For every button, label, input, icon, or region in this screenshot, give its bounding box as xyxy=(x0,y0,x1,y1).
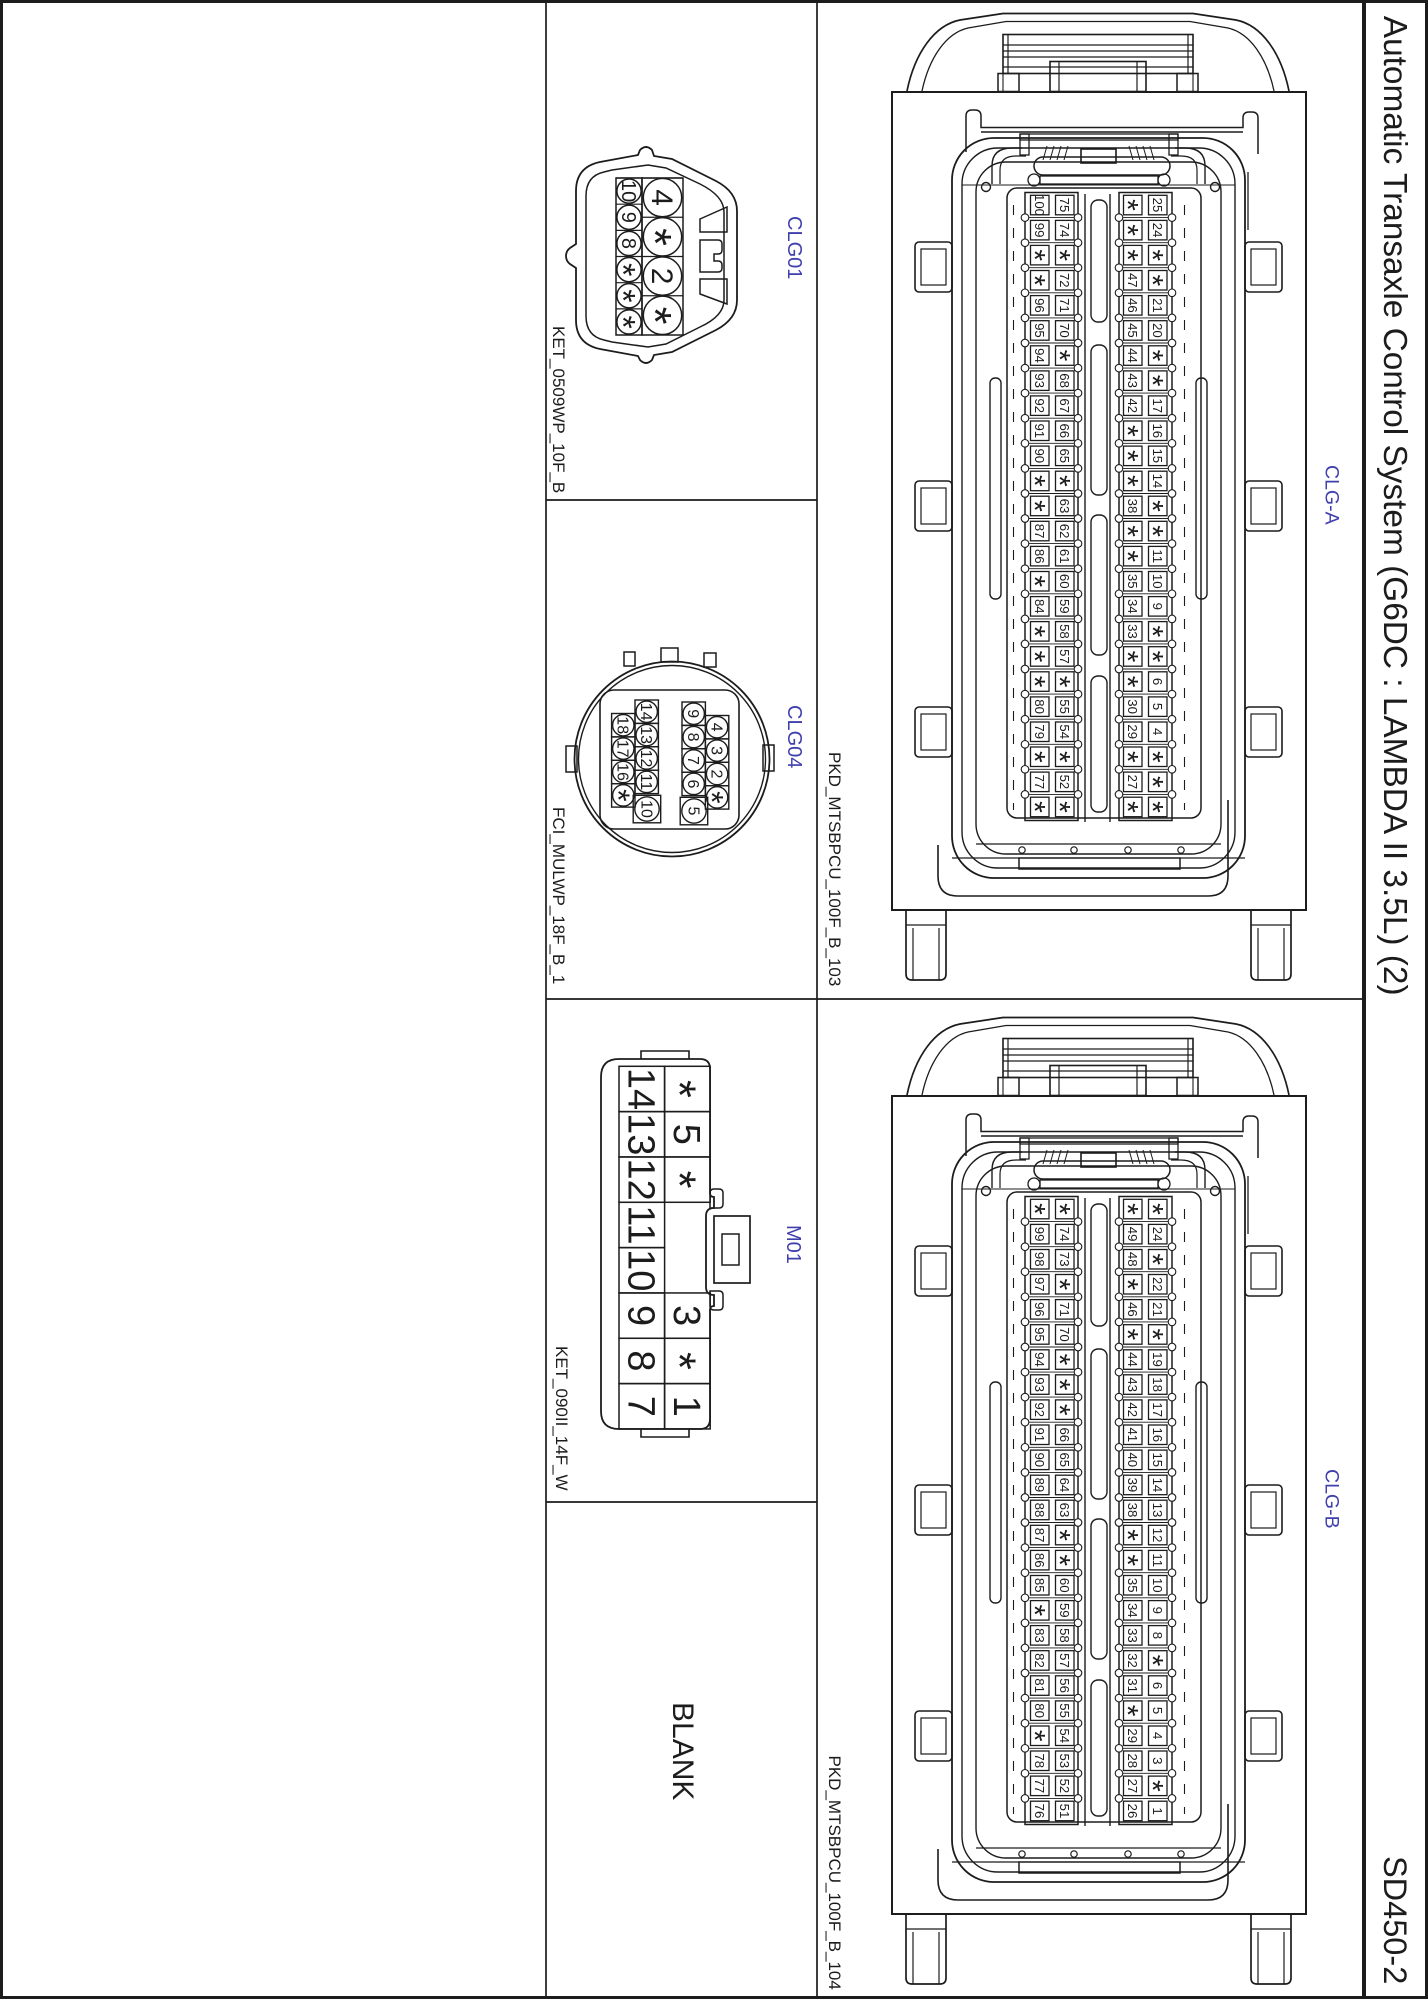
svg-text:*: * xyxy=(1135,249,1168,261)
svg-text:CLG01: CLG01 xyxy=(783,216,805,279)
svg-text:KET_0509WP_10F_B: KET_0509WP_10F_B xyxy=(549,326,568,493)
svg-text:29: 29 xyxy=(1125,1728,1140,1743)
svg-text:65: 65 xyxy=(1057,1452,1072,1467)
svg-text:43: 43 xyxy=(1125,1377,1140,1392)
svg-text:14: 14 xyxy=(1150,1478,1165,1493)
svg-text:65: 65 xyxy=(1057,448,1072,463)
svg-text:*: * xyxy=(1135,350,1168,362)
svg-text:10: 10 xyxy=(1150,574,1165,589)
svg-text:12: 12 xyxy=(1150,1528,1165,1543)
svg-text:58: 58 xyxy=(1057,624,1072,639)
svg-text:90: 90 xyxy=(1032,448,1047,463)
svg-text:*: * xyxy=(1017,626,1050,638)
svg-text:*: * xyxy=(1042,1379,1075,1391)
svg-text:20: 20 xyxy=(1150,323,1165,338)
svg-text:70: 70 xyxy=(1057,1327,1072,1342)
svg-text:70: 70 xyxy=(1057,323,1072,338)
svg-text:4: 4 xyxy=(645,189,678,206)
svg-text:73: 73 xyxy=(1057,1252,1072,1267)
svg-text:*: * xyxy=(1110,425,1143,437)
svg-text:*: * xyxy=(600,789,636,801)
svg-text:66: 66 xyxy=(1057,423,1072,438)
svg-text:31: 31 xyxy=(1125,1678,1140,1693)
svg-text:39: 39 xyxy=(1125,1478,1140,1493)
svg-text:18: 18 xyxy=(614,716,631,734)
svg-text:72: 72 xyxy=(1057,273,1072,288)
svg-text:*: * xyxy=(654,1080,706,1098)
svg-text:55: 55 xyxy=(1057,699,1072,714)
svg-text:53: 53 xyxy=(1057,1753,1072,1768)
svg-text:91: 91 xyxy=(1032,423,1047,438)
svg-text:*: * xyxy=(1042,751,1075,763)
svg-text:63: 63 xyxy=(1057,1503,1072,1518)
svg-text:9: 9 xyxy=(684,709,701,718)
svg-text:7: 7 xyxy=(684,756,701,765)
svg-text:44: 44 xyxy=(1125,1352,1140,1367)
svg-text:7: 7 xyxy=(620,1396,662,1417)
svg-text:80: 80 xyxy=(1032,699,1047,714)
svg-text:89: 89 xyxy=(1032,1478,1047,1493)
svg-text:*: * xyxy=(654,1352,706,1370)
svg-text:*: * xyxy=(1042,1278,1075,1290)
svg-text:17: 17 xyxy=(1150,1402,1165,1417)
svg-text:46: 46 xyxy=(1125,298,1140,313)
svg-text:86: 86 xyxy=(1032,549,1047,564)
svg-text:54: 54 xyxy=(1057,724,1072,739)
svg-text:3: 3 xyxy=(708,746,725,755)
svg-text:8: 8 xyxy=(1150,1632,1165,1639)
svg-text:6: 6 xyxy=(1150,1682,1165,1689)
svg-text:9: 9 xyxy=(1150,1607,1165,1614)
svg-text:*: * xyxy=(1042,475,1075,487)
svg-text:16: 16 xyxy=(1150,1427,1165,1442)
svg-text:*: * xyxy=(1135,375,1168,387)
svg-text:61: 61 xyxy=(1057,549,1072,564)
svg-text:77: 77 xyxy=(1032,775,1047,790)
svg-text:35: 35 xyxy=(1125,1578,1140,1593)
svg-text:24: 24 xyxy=(1150,223,1165,238)
svg-text:52: 52 xyxy=(1057,775,1072,790)
svg-text:*: * xyxy=(1135,1329,1168,1341)
svg-text:*: * xyxy=(604,263,642,276)
svg-text:57: 57 xyxy=(1057,1653,1072,1668)
svg-text:15: 15 xyxy=(1150,1452,1165,1467)
svg-text:92: 92 xyxy=(1032,398,1047,413)
svg-text:51: 51 xyxy=(1057,1804,1072,1819)
svg-text:81: 81 xyxy=(1032,1678,1047,1693)
svg-text:25: 25 xyxy=(1150,198,1165,213)
svg-text:41: 41 xyxy=(1125,1427,1140,1442)
svg-text:95: 95 xyxy=(1032,1327,1047,1342)
svg-text:*: * xyxy=(629,228,681,246)
svg-text:*: * xyxy=(1135,525,1168,537)
svg-text:5: 5 xyxy=(665,1124,707,1145)
svg-text:90: 90 xyxy=(1032,1452,1047,1467)
svg-text:21: 21 xyxy=(1150,1302,1165,1317)
svg-text:58: 58 xyxy=(1057,1628,1072,1643)
svg-text:3: 3 xyxy=(665,1305,707,1326)
svg-text:80: 80 xyxy=(1032,1703,1047,1718)
svg-text:*: * xyxy=(1017,1604,1050,1616)
svg-text:CLG-A: CLG-A xyxy=(1320,465,1342,525)
svg-text:62: 62 xyxy=(1057,524,1072,539)
svg-text:*: * xyxy=(1042,1404,1075,1416)
svg-text:6: 6 xyxy=(1150,678,1165,685)
svg-text:4: 4 xyxy=(1150,728,1165,735)
svg-text:*: * xyxy=(1042,1354,1075,1366)
svg-text:11: 11 xyxy=(637,774,654,791)
svg-text:14: 14 xyxy=(1150,474,1165,489)
svg-text:M01: M01 xyxy=(782,1225,804,1264)
svg-text:29: 29 xyxy=(1125,724,1140,739)
svg-text:14: 14 xyxy=(637,703,654,721)
svg-text:87: 87 xyxy=(1032,524,1047,539)
svg-text:100: 100 xyxy=(1032,194,1047,216)
svg-text:CLG-B: CLG-B xyxy=(1320,1469,1342,1529)
svg-text:*: * xyxy=(1110,450,1143,462)
svg-text:74: 74 xyxy=(1057,1227,1072,1242)
svg-text:64: 64 xyxy=(1057,1478,1072,1493)
svg-text:*: * xyxy=(1110,1278,1143,1290)
svg-text:30: 30 xyxy=(1125,699,1140,714)
svg-text:2: 2 xyxy=(708,770,725,779)
svg-text:66: 66 xyxy=(1057,1427,1072,1442)
svg-text:96: 96 xyxy=(1032,1302,1047,1317)
svg-text:*: * xyxy=(1017,575,1050,587)
svg-text:16: 16 xyxy=(614,763,631,781)
svg-text:15: 15 xyxy=(1150,448,1165,463)
svg-text:56: 56 xyxy=(1057,1678,1072,1693)
svg-text:*: * xyxy=(1110,224,1143,236)
svg-text:95: 95 xyxy=(1032,323,1047,338)
svg-text:52: 52 xyxy=(1057,1779,1072,1794)
svg-text:3: 3 xyxy=(1150,1757,1165,1764)
svg-text:9: 9 xyxy=(620,1305,662,1326)
svg-text:9: 9 xyxy=(1150,603,1165,610)
svg-text:42: 42 xyxy=(1125,398,1140,413)
svg-text:42: 42 xyxy=(1125,1402,1140,1417)
svg-text:38: 38 xyxy=(1125,1503,1140,1518)
svg-text:*: * xyxy=(654,1171,706,1189)
svg-text:SD450-2: SD450-2 xyxy=(1377,1856,1413,1984)
svg-text:10: 10 xyxy=(617,180,639,202)
svg-text:88: 88 xyxy=(1032,1503,1047,1518)
svg-text:83: 83 xyxy=(1032,1628,1047,1643)
svg-text:*: * xyxy=(1042,676,1075,688)
svg-text:*: * xyxy=(1135,1655,1168,1667)
svg-text:6: 6 xyxy=(684,779,701,788)
svg-text:*: * xyxy=(1135,274,1168,286)
svg-text:67: 67 xyxy=(1057,398,1072,413)
svg-text:*: * xyxy=(1135,626,1168,638)
svg-text:*: * xyxy=(1042,801,1075,813)
svg-text:57: 57 xyxy=(1057,649,1072,664)
svg-text:79: 79 xyxy=(1032,724,1047,739)
svg-text:91: 91 xyxy=(1032,1427,1047,1442)
svg-text:68: 68 xyxy=(1057,373,1072,388)
svg-text:17: 17 xyxy=(614,740,631,758)
svg-text:9: 9 xyxy=(617,212,639,223)
svg-text:28: 28 xyxy=(1125,1753,1140,1768)
svg-text:60: 60 xyxy=(1057,574,1072,589)
svg-text:*: * xyxy=(1110,1529,1143,1541)
svg-text:16: 16 xyxy=(1150,423,1165,438)
svg-text:*: * xyxy=(1110,475,1143,487)
svg-text:*: * xyxy=(1110,550,1143,562)
svg-text:*: * xyxy=(1017,1730,1050,1742)
svg-text:*: * xyxy=(1135,801,1168,813)
svg-text:PKD_MTSBPCU_100F_B_104: PKD_MTSBPCU_100F_B_104 xyxy=(825,1756,844,1990)
svg-text:*: * xyxy=(1135,1253,1168,1265)
svg-text:24: 24 xyxy=(1150,1227,1165,1242)
svg-text:99: 99 xyxy=(1032,1227,1047,1242)
svg-text:17: 17 xyxy=(1150,398,1165,413)
svg-text:45: 45 xyxy=(1125,323,1140,338)
svg-text:PKD_MTSBPCU_100F_B_103: PKD_MTSBPCU_100F_B_103 xyxy=(825,752,844,986)
svg-text:*: * xyxy=(1135,776,1168,788)
svg-text:*: * xyxy=(1110,1554,1143,1566)
svg-text:11: 11 xyxy=(620,1205,662,1244)
svg-text:*: * xyxy=(1135,651,1168,663)
svg-text:63: 63 xyxy=(1057,499,1072,514)
svg-text:19: 19 xyxy=(1150,1352,1165,1367)
svg-text:1: 1 xyxy=(665,1396,707,1417)
svg-text:60: 60 xyxy=(1057,1578,1072,1593)
svg-text:13: 13 xyxy=(620,1113,662,1155)
svg-text:77: 77 xyxy=(1032,1779,1047,1794)
svg-text:98: 98 xyxy=(1032,1252,1047,1267)
svg-text:KET_090II_14F_W: KET_090II_14F_W xyxy=(552,1346,571,1491)
svg-text:22: 22 xyxy=(1150,1277,1165,1292)
svg-text:BLANK: BLANK xyxy=(666,1702,699,1800)
svg-text:99: 99 xyxy=(1032,223,1047,238)
svg-text:34: 34 xyxy=(1125,599,1140,614)
svg-text:76: 76 xyxy=(1032,1804,1047,1819)
svg-text:FCI_MULWP_18F_B_1: FCI_MULWP_18F_B_1 xyxy=(549,807,568,984)
svg-text:*: * xyxy=(1110,1705,1143,1717)
svg-text:CLG04: CLG04 xyxy=(783,705,805,768)
svg-text:5: 5 xyxy=(1150,1707,1165,1714)
svg-text:71: 71 xyxy=(1057,298,1072,313)
svg-text:*: * xyxy=(1042,249,1075,261)
svg-text:*: * xyxy=(1017,500,1050,512)
svg-text:5: 5 xyxy=(684,807,701,816)
svg-text:55: 55 xyxy=(1057,1703,1072,1718)
svg-text:11: 11 xyxy=(1150,1553,1165,1567)
svg-text:96: 96 xyxy=(1032,298,1047,313)
svg-text:49: 49 xyxy=(1125,1227,1140,1242)
svg-text:*: * xyxy=(1042,350,1075,362)
svg-text:*: * xyxy=(629,307,681,325)
svg-text:26: 26 xyxy=(1125,1804,1140,1819)
svg-text:59: 59 xyxy=(1057,599,1072,614)
svg-text:85: 85 xyxy=(1032,1578,1047,1593)
svg-text:*: * xyxy=(1042,1529,1075,1541)
svg-text:*: * xyxy=(1135,1780,1168,1792)
svg-text:*: * xyxy=(1042,1203,1075,1215)
svg-text:33: 33 xyxy=(1125,1628,1140,1643)
svg-text:35: 35 xyxy=(1125,574,1140,589)
svg-text:59: 59 xyxy=(1057,1603,1072,1618)
svg-text:10: 10 xyxy=(620,1249,662,1291)
svg-text:8: 8 xyxy=(684,733,701,742)
svg-text:71: 71 xyxy=(1057,1302,1072,1317)
svg-text:21: 21 xyxy=(1150,298,1165,313)
svg-text:10: 10 xyxy=(1150,1578,1165,1593)
svg-text:*: * xyxy=(1110,199,1143,211)
svg-text:*: * xyxy=(1017,651,1050,663)
svg-text:82: 82 xyxy=(1032,1653,1047,1668)
svg-text:40: 40 xyxy=(1125,1452,1140,1467)
svg-text:84: 84 xyxy=(1032,599,1047,614)
svg-text:*: * xyxy=(1042,1554,1075,1566)
svg-text:78: 78 xyxy=(1032,1753,1047,1768)
svg-text:10: 10 xyxy=(637,800,654,818)
svg-text:74: 74 xyxy=(1057,223,1072,238)
svg-text:4: 4 xyxy=(708,723,725,732)
svg-text:13: 13 xyxy=(637,726,654,744)
svg-text:46: 46 xyxy=(1125,1302,1140,1317)
svg-text:54: 54 xyxy=(1057,1728,1072,1743)
svg-text:*: * xyxy=(1110,676,1143,688)
svg-text:93: 93 xyxy=(1032,373,1047,388)
svg-text:Automatic Transaxle Control Sy: Automatic Transaxle Control System (G6DC… xyxy=(1376,16,1413,996)
svg-text:1: 1 xyxy=(1150,1807,1165,1814)
svg-text:11: 11 xyxy=(1150,549,1165,563)
svg-text:*: * xyxy=(1017,274,1050,286)
svg-text:75: 75 xyxy=(1057,198,1072,213)
svg-text:13: 13 xyxy=(1150,1503,1165,1518)
svg-text:34: 34 xyxy=(1125,1603,1140,1618)
svg-text:5: 5 xyxy=(1150,703,1165,710)
svg-text:*: * xyxy=(694,791,730,803)
svg-text:12: 12 xyxy=(637,750,654,768)
svg-text:*: * xyxy=(1135,500,1168,512)
svg-text:*: * xyxy=(1135,751,1168,763)
svg-text:4: 4 xyxy=(1150,1732,1165,1739)
svg-text:*: * xyxy=(604,289,642,302)
svg-text:18: 18 xyxy=(1150,1377,1165,1392)
svg-text:*: * xyxy=(1135,1203,1168,1215)
svg-text:2: 2 xyxy=(645,268,678,285)
